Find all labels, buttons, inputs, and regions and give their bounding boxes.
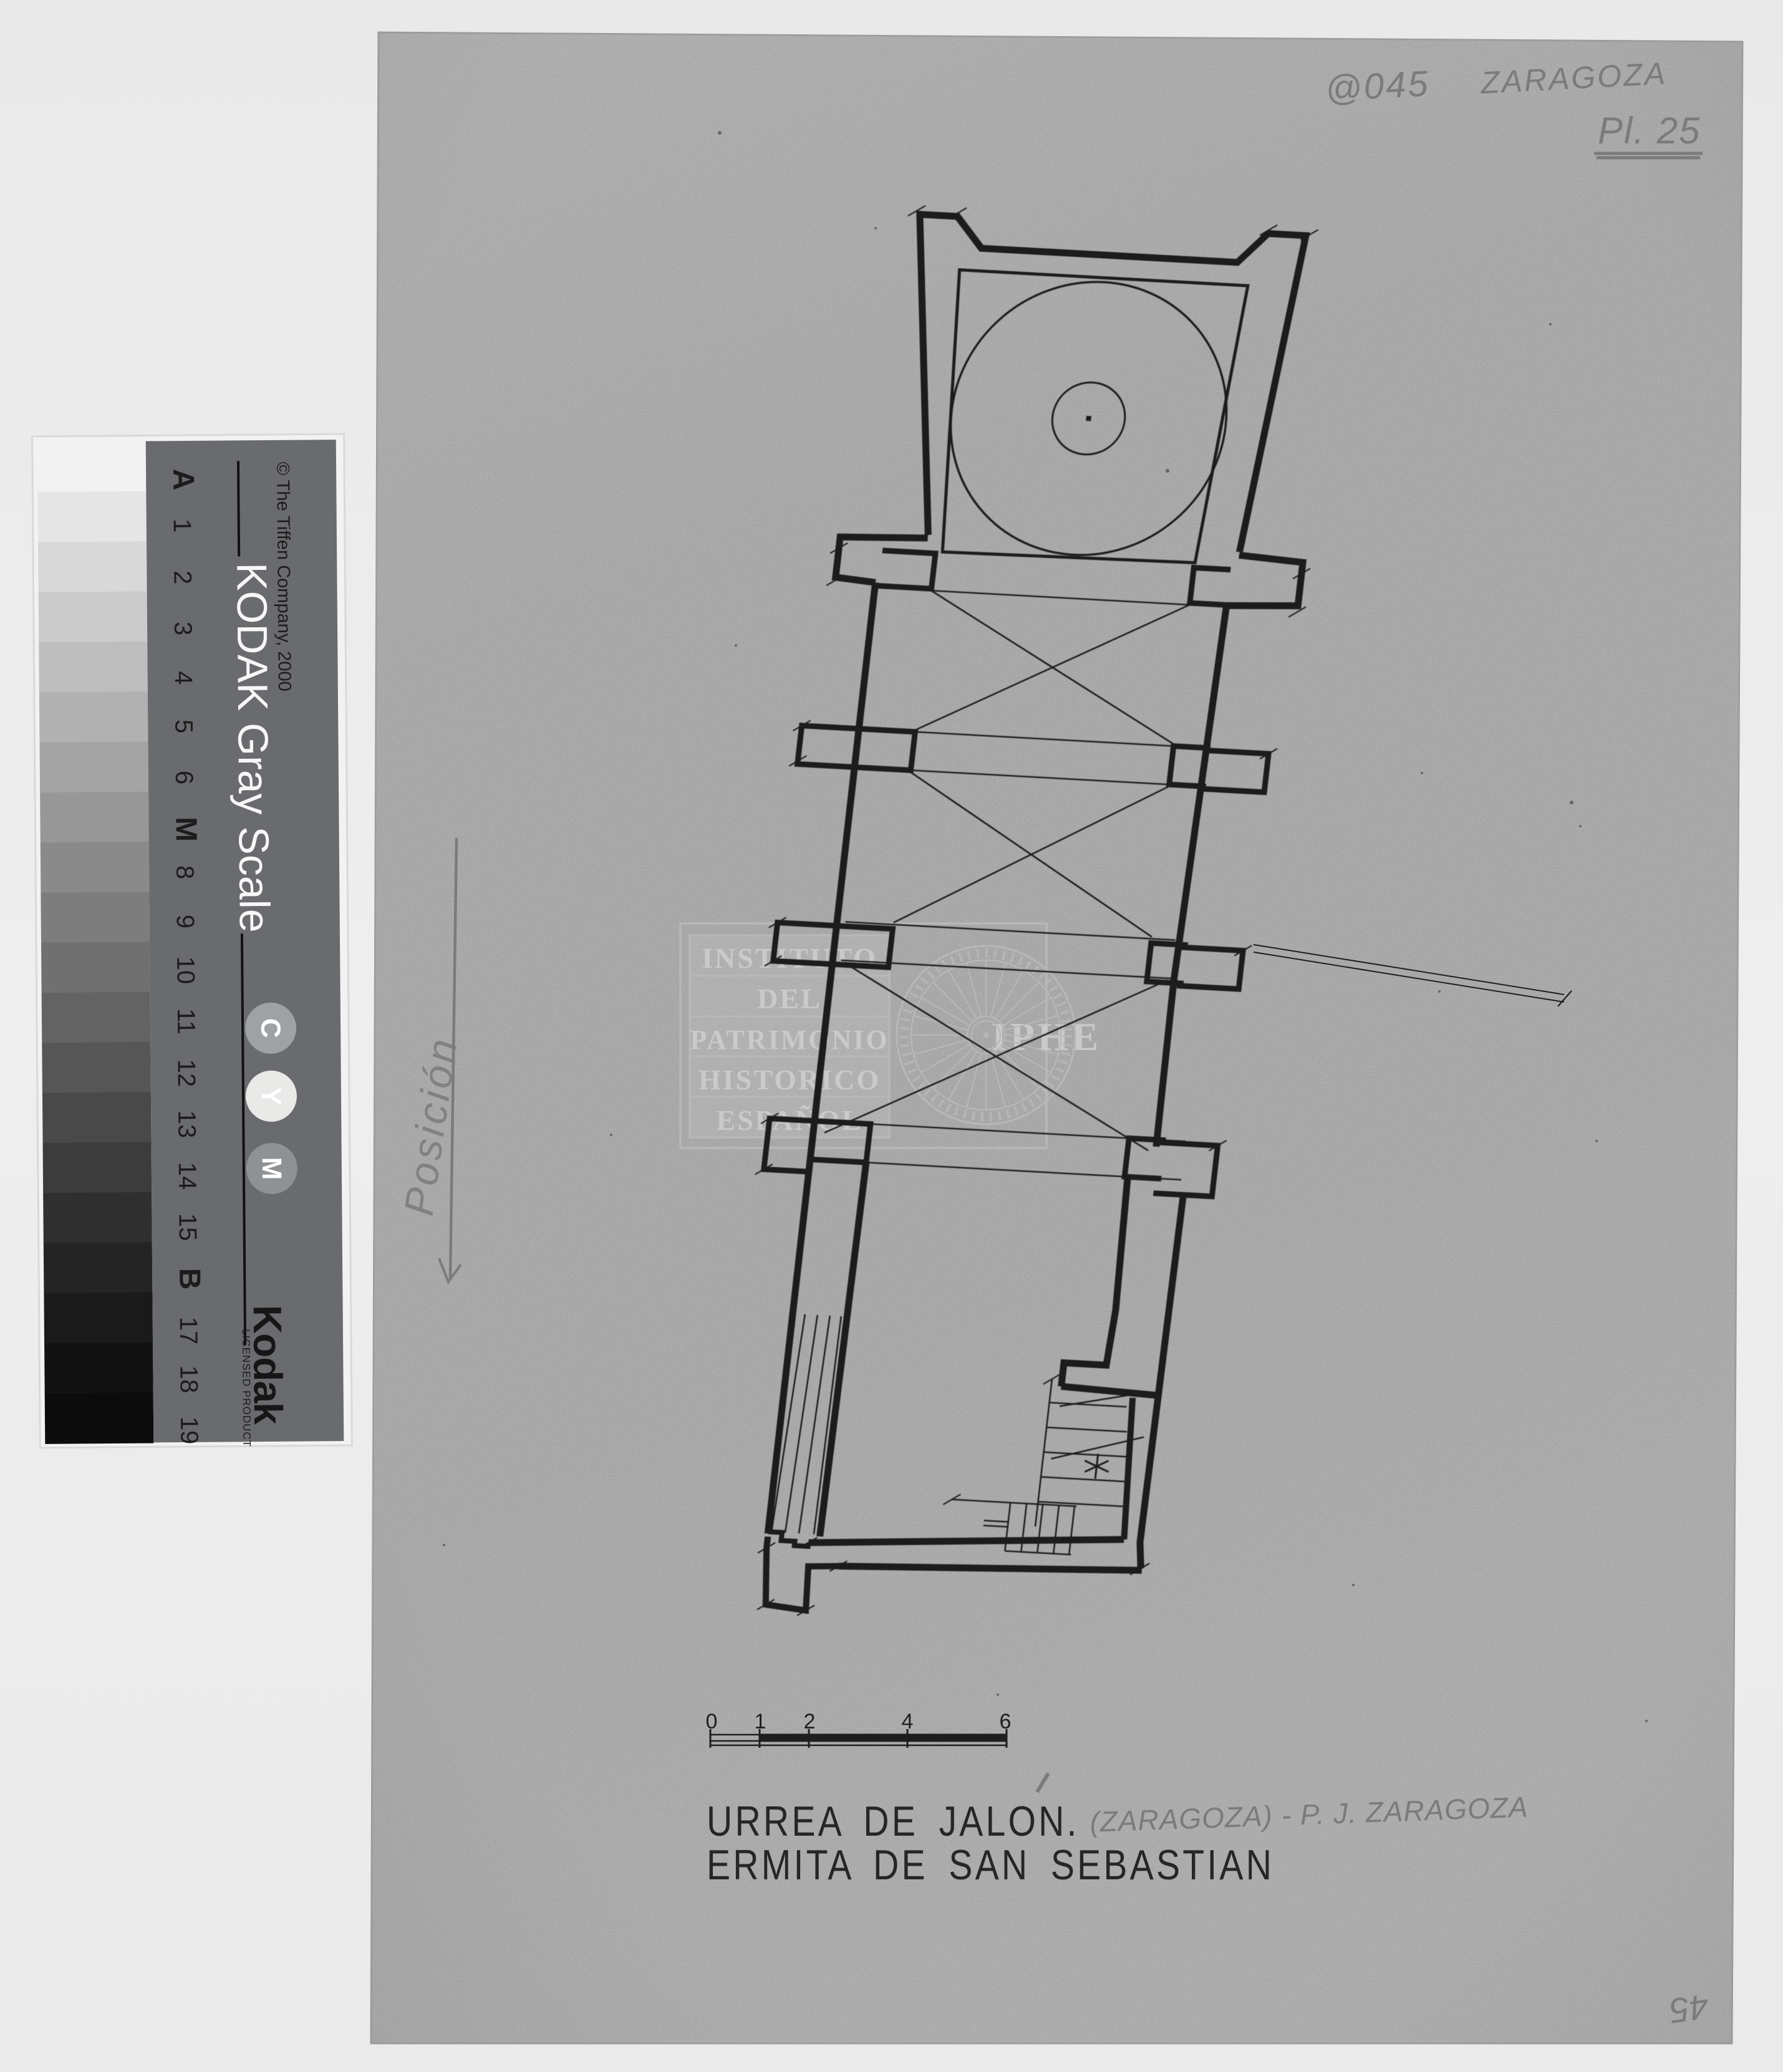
svg-text:3: 3 <box>169 622 196 636</box>
svg-text:PATRIMONIO: PATRIMONIO <box>690 1024 889 1055</box>
svg-text:15: 15 <box>173 1213 201 1241</box>
svg-text:14: 14 <box>173 1162 201 1190</box>
svg-text:9: 9 <box>172 915 199 929</box>
svg-text:5: 5 <box>170 720 197 734</box>
svg-text:6: 6 <box>1000 1710 1012 1733</box>
svg-text:45: 45 <box>1667 1987 1711 2031</box>
svg-text:18: 18 <box>175 1366 202 1394</box>
svg-text:1: 1 <box>168 519 196 533</box>
svg-text:ERMITA DE SAN SEBASTIAN: ERMITA DE SAN SEBASTIAN <box>707 1841 1274 1889</box>
svg-text:2: 2 <box>168 571 196 585</box>
svg-text:Pl. 25: Pl. 25 <box>1598 110 1701 152</box>
svg-text:6: 6 <box>170 771 198 785</box>
svg-text:0: 0 <box>706 1710 718 1733</box>
svg-text:IPHE: IPHE <box>992 1014 1101 1059</box>
svg-text:© The Tiffen Company, 2000: © The Tiffen Company, 2000 <box>273 462 294 691</box>
svg-text:B: B <box>173 1268 206 1289</box>
svg-text:2: 2 <box>804 1710 816 1733</box>
svg-text:10: 10 <box>172 956 199 985</box>
svg-text:4: 4 <box>902 1710 914 1733</box>
svg-text:C: C <box>255 1018 286 1038</box>
svg-text:13: 13 <box>173 1111 200 1139</box>
svg-text:1: 1 <box>755 1710 766 1733</box>
svg-text:@045: @045 <box>1324 63 1431 109</box>
svg-text:11: 11 <box>172 1008 200 1034</box>
svg-text:8: 8 <box>171 865 198 880</box>
svg-text:4: 4 <box>170 671 197 685</box>
svg-text:HISTORICO: HISTORICO <box>698 1064 881 1096</box>
svg-text:A: A <box>167 468 200 490</box>
svg-text:17: 17 <box>175 1317 202 1345</box>
svg-text:Y: Y <box>256 1087 286 1106</box>
svg-text:KODAK Gray Scale: KODAK Gray Scale <box>228 562 278 933</box>
svg-text:12: 12 <box>172 1059 200 1087</box>
svg-text:M: M <box>256 1157 287 1180</box>
svg-text:DEL: DEL <box>757 983 822 1014</box>
svg-text:19: 19 <box>175 1417 203 1445</box>
svg-text:LICENSED PRODUCT: LICENSED PRODUCT <box>240 1329 253 1447</box>
svg-text:M: M <box>169 817 202 842</box>
svg-text:URREA DE JALON.: URREA DE JALON. <box>707 1798 1080 1845</box>
svg-text:INSTITUTO: INSTITUTO <box>702 942 877 974</box>
